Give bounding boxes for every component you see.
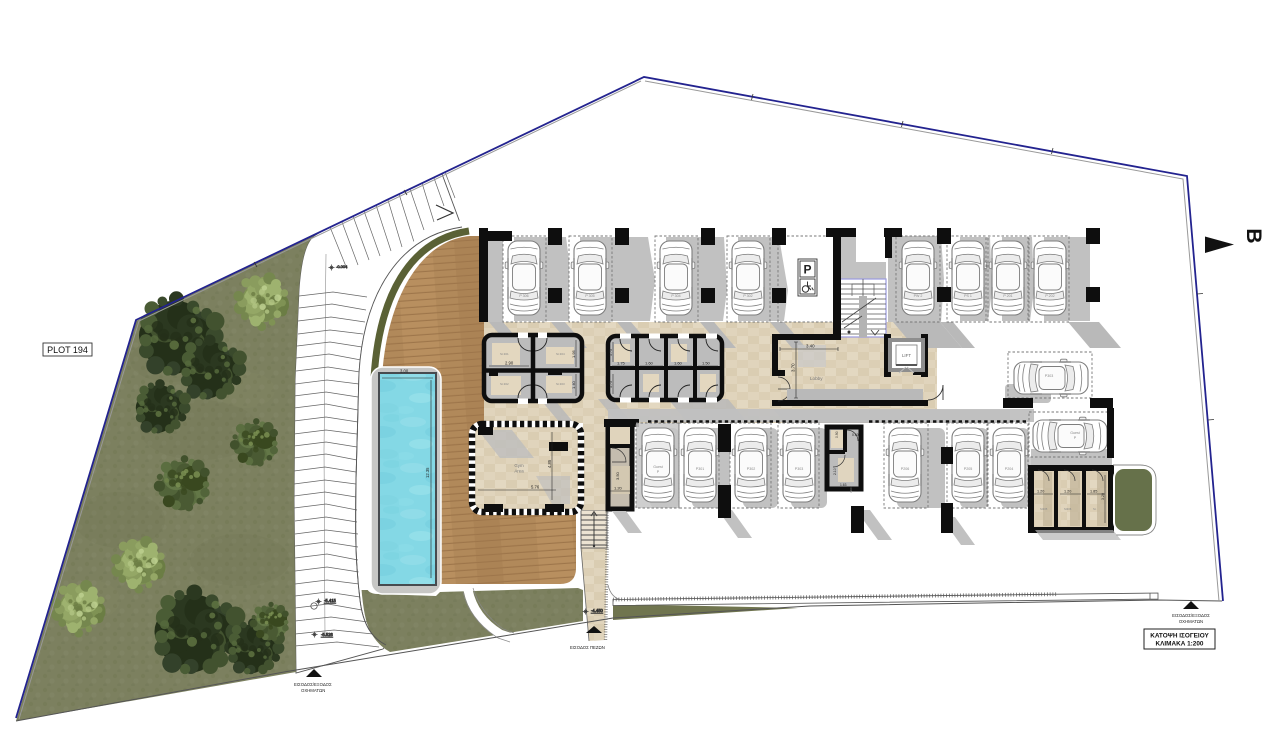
svg-text:ΚΑΤΟΨΗ ΙΣΟΓΕΙΟΥ: ΚΑΤΟΨΗ ΙΣΟΓΕΙΟΥ (1150, 633, 1209, 640)
svg-text:1.63: 1.63 (840, 483, 847, 487)
svg-text:St306: St306 (1064, 507, 1072, 511)
svg-text:P206: P206 (901, 467, 909, 471)
svg-text:1.20: 1.20 (1064, 490, 1071, 494)
svg-text:P302: P302 (747, 467, 755, 471)
svg-text:1.40: 1.40 (571, 380, 576, 389)
svg-text:1.60: 1.60 (674, 361, 683, 366)
svg-text:3.50: 3.50 (615, 471, 620, 480)
svg-text:P303: P303 (795, 467, 803, 471)
svg-text:P 306: P 306 (519, 294, 528, 298)
svg-text:W.C.: W.C. (849, 486, 853, 493)
svg-text:1.85: 1.85 (1090, 490, 1097, 494)
svg-text:-4.450: -4.450 (591, 608, 604, 613)
svg-text:P 201: P 201 (1003, 294, 1012, 298)
svg-text:1.75: 1.75 (609, 349, 613, 356)
svg-text:0.60: 0.60 (852, 433, 859, 437)
svg-text:PW 2: PW 2 (914, 294, 923, 298)
svg-text:1.60: 1.60 (645, 361, 654, 366)
svg-text:Guest: Guest (1070, 431, 1080, 435)
svg-text:P301: P301 (696, 467, 704, 471)
svg-text:5.76: 5.76 (531, 485, 540, 490)
svg-text:B: B (1242, 228, 1265, 243)
svg-text:P303: P303 (1045, 374, 1053, 378)
svg-text:4.85: 4.85 (547, 459, 552, 468)
svg-text:PS 1: PS 1 (964, 294, 972, 298)
svg-text:3.20: 3.20 (1101, 493, 1105, 500)
svg-text:Area: Area (514, 469, 524, 474)
svg-text:ΕΙΣΟΔΟΣ/ΕΞΟΔΟΣ: ΕΙΣΟΔΟΣ/ΕΞΟΔΟΣ (1172, 613, 1210, 618)
svg-text:ΟΧΗΜΑΤΩΝ: ΟΧΗΜΑΤΩΝ (1179, 619, 1203, 624)
svg-text:St.301: St.301 (500, 352, 509, 356)
svg-text:St.304: St.304 (556, 352, 565, 356)
svg-text:-5.526: -5.526 (321, 632, 334, 637)
svg-text:ΕΙΣΟΔΟΣ/ΕΞΟΔΟΣ: ΕΙΣΟΔΟΣ/ΕΞΟΔΟΣ (294, 682, 332, 687)
svg-text:P 304: P 304 (671, 294, 680, 298)
svg-text:2.10: 2.10 (833, 468, 837, 475)
svg-text:1.95: 1.95 (571, 349, 576, 358)
svg-text:12.35: 12.35 (425, 467, 430, 478)
svg-text:St.302: St.302 (500, 382, 509, 386)
svg-text:1.50: 1.50 (702, 361, 711, 366)
svg-text:PLOT 194: PLOT 194 (47, 345, 88, 355)
svg-text:P 302: P 302 (743, 294, 752, 298)
svg-text:Gym: Gym (514, 463, 524, 468)
svg-text:ΚΛΙΜΑΚΑ 1:200: ΚΛΙΜΑΚΑ 1:200 (1156, 641, 1204, 648)
svg-text:1.75: 1.75 (617, 361, 626, 366)
svg-text:3.00: 3.00 (400, 369, 409, 374)
svg-text:St.: St. (1093, 507, 1097, 511)
svg-text:ΕΙΣΟΔΟΣ ΠΕΖΩΝ: ΕΙΣΟΔΟΣ ΠΕΖΩΝ (570, 645, 605, 650)
svg-text:St305: St305 (1040, 507, 1048, 511)
svg-text:0.90: 0.90 (835, 431, 839, 438)
svg-text:3.40: 3.40 (806, 344, 815, 349)
svg-text:P: P (803, 263, 811, 277)
svg-text:1.75: 1.75 (609, 381, 613, 388)
svg-text:P205: P205 (964, 467, 972, 471)
svg-text:1.20: 1.20 (614, 486, 623, 491)
svg-text:1.20: 1.20 (1037, 490, 1044, 494)
svg-text:ΟΧΗΜΑΤΩΝ: ΟΧΗΜΑΤΩΝ (301, 688, 325, 693)
svg-text:3.70: 3.70 (791, 363, 796, 372)
svg-text:P 202: P 202 (1045, 294, 1054, 298)
svg-text:Guest: Guest (653, 465, 663, 469)
svg-text:Lobby: Lobby (810, 376, 823, 381)
svg-text:2.90: 2.90 (505, 361, 514, 366)
svg-text:P 305: P 305 (585, 294, 594, 298)
svg-text:St.303: St.303 (556, 382, 565, 386)
svg-text:-0.004: -0.004 (336, 264, 348, 269)
svg-text:LIFT: LIFT (902, 353, 911, 358)
svg-text:P204: P204 (1005, 467, 1013, 471)
svg-text:-5.415: -5.415 (324, 598, 337, 603)
